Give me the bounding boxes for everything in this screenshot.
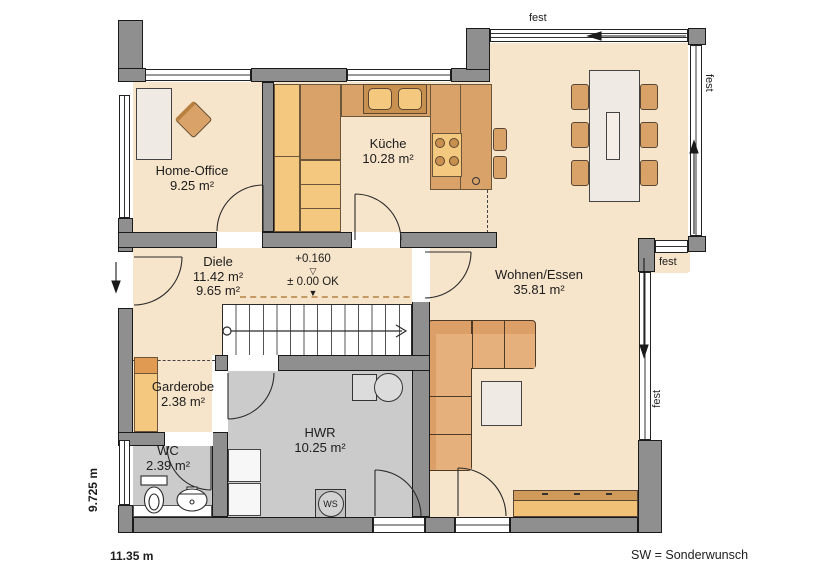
room-area: 2.39 m² bbox=[146, 459, 190, 474]
room-label-home-office: Home-Office 9.25 m² bbox=[156, 164, 229, 193]
cooktop-burner bbox=[435, 138, 445, 148]
wall-post-top-right bbox=[688, 28, 706, 45]
room-area: 9.25 m² bbox=[156, 179, 229, 194]
room-area: 10.25 m² bbox=[294, 441, 345, 456]
dryer bbox=[228, 483, 261, 516]
sofa-cushion-divider bbox=[424, 396, 471, 397]
living-door-opening bbox=[412, 248, 430, 302]
kitchen-shelf-line bbox=[301, 208, 340, 209]
water-softener: WS bbox=[315, 489, 346, 519]
kitchen-counter-left-bottom bbox=[300, 160, 341, 232]
room-label-kitchen: Küche 10.28 m² bbox=[362, 137, 413, 166]
table-centerpiece bbox=[606, 112, 620, 160]
room-label-utility: HWR 10.25 m² bbox=[294, 426, 345, 455]
dining-chair bbox=[571, 160, 589, 186]
living-terrace-door bbox=[455, 517, 510, 533]
sofa-seat-cushions bbox=[436, 334, 471, 470]
elevation-marks: +0.160 ▽ ± 0.00 OK ▼ bbox=[287, 253, 339, 298]
wall-post-step bbox=[638, 238, 655, 272]
dining-chair bbox=[640, 84, 658, 110]
floor-plan: WS bbox=[0, 0, 822, 570]
wall-hall-living bbox=[412, 300, 430, 517]
cooktop-burner bbox=[449, 138, 459, 148]
cloakroom-wardrobe-top bbox=[134, 357, 158, 374]
wall-bumpout-left bbox=[466, 28, 490, 70]
room-label-wc: WC 2.39 m² bbox=[146, 444, 190, 473]
wc-vanity bbox=[133, 505, 212, 517]
window-living-east bbox=[639, 272, 651, 440]
window-wc-west bbox=[119, 440, 130, 505]
bar-stool bbox=[493, 156, 507, 179]
wall-bottom-stub bbox=[425, 517, 455, 533]
boiler-tank bbox=[374, 373, 403, 402]
kitchen-cabinet-divider bbox=[275, 156, 299, 157]
room-area: 35.81 m² bbox=[495, 283, 583, 298]
room-name: WC bbox=[146, 444, 190, 459]
sideboard-top bbox=[513, 490, 638, 501]
wall-bottom-right bbox=[510, 517, 638, 533]
dining-chair bbox=[640, 122, 658, 148]
kitchen-tall-cabinet bbox=[274, 84, 300, 232]
window-dining-east bbox=[690, 45, 702, 236]
window-kitchen-north bbox=[347, 69, 451, 81]
room-label-living-dining: Wohnen/Essen 35.81 m² bbox=[495, 268, 583, 297]
dining-chair bbox=[640, 160, 658, 186]
kitchen-sink-basin bbox=[398, 88, 422, 110]
dining-chair bbox=[571, 84, 589, 110]
utility-door-opening bbox=[228, 355, 278, 371]
sideboard-handle bbox=[542, 493, 548, 495]
entrance-door-opening bbox=[118, 252, 133, 308]
kitchen-door-opening bbox=[352, 232, 400, 248]
room-name: HWR bbox=[294, 426, 345, 441]
staircase bbox=[222, 304, 412, 357]
wall-left-lower bbox=[118, 308, 133, 440]
wall-top-pier bbox=[251, 68, 347, 82]
wall-wc-utility bbox=[212, 432, 228, 517]
dining-chair bbox=[571, 122, 589, 148]
room-name: Wohnen/Essen bbox=[495, 268, 583, 283]
room-area: 11.42 m² bbox=[193, 270, 243, 285]
dimension-width: 11.35 m bbox=[110, 549, 153, 563]
kitchen-shelf-line bbox=[301, 184, 340, 185]
wall-office-kitchen bbox=[262, 82, 274, 232]
wall-stub-top-left bbox=[118, 20, 143, 69]
desk bbox=[136, 88, 172, 160]
kitchen-living-boundary-line bbox=[487, 190, 488, 233]
sideboard-handle bbox=[574, 493, 580, 495]
fixed-glazing-label-east-upper: fest bbox=[703, 74, 715, 92]
room-name: Home-Office bbox=[156, 164, 229, 179]
wall-bottom bbox=[133, 517, 373, 533]
legend-sonderwunsch: SW = Sonderwunsch bbox=[631, 548, 748, 562]
wall-top-corner bbox=[118, 68, 146, 82]
room-area: 2.38 m² bbox=[152, 395, 214, 410]
window-step bbox=[655, 240, 688, 253]
room-name: Diele bbox=[193, 255, 243, 270]
wall-kitchen-south-left bbox=[262, 232, 352, 248]
wall-kitchen-south-right bbox=[400, 232, 497, 248]
wall-top-pier bbox=[451, 68, 490, 82]
sideboard-handle bbox=[606, 493, 612, 495]
room-name: Küche bbox=[362, 137, 413, 152]
elevation-triangle-hollow: ▽ bbox=[287, 267, 339, 276]
window-dining-sliding bbox=[490, 29, 688, 42]
room-name: Garderobe bbox=[152, 380, 214, 395]
sofa-cushion-divider bbox=[504, 321, 505, 368]
elevation-upper: +0.160 bbox=[287, 253, 339, 267]
sofa-cushion-divider bbox=[472, 321, 473, 368]
washer bbox=[228, 449, 261, 482]
fixed-glazing-label-east-lower: fest bbox=[651, 390, 663, 408]
room-label-cloakroom: Garderobe 2.38 m² bbox=[152, 380, 214, 409]
utility-terrace-door bbox=[373, 517, 425, 533]
wall-right-lower bbox=[638, 440, 662, 533]
water-softener-label: WS bbox=[318, 491, 344, 517]
room-area: 10.28 m² bbox=[362, 152, 413, 167]
wall-office-south bbox=[118, 232, 217, 248]
coffee-table bbox=[481, 381, 522, 426]
window-office-north bbox=[145, 69, 251, 81]
wall-utility-north-left bbox=[215, 355, 228, 371]
sofa-cushion-divider bbox=[424, 434, 471, 435]
wall-bottom-left-corner bbox=[118, 505, 133, 533]
cooktop-burner bbox=[449, 156, 459, 166]
wall-post-right-mid bbox=[688, 236, 706, 252]
elevation-triangle-filled: ▼ bbox=[287, 289, 339, 298]
dimension-height: 9.725 m bbox=[86, 468, 100, 512]
elevation-main: ± 0.00 OK bbox=[287, 276, 339, 290]
wall-utility-north-right bbox=[278, 355, 430, 371]
kitchen-counter-left-top bbox=[300, 84, 341, 160]
fixed-glazing-label-north: fest bbox=[529, 12, 547, 24]
kitchen-sink-basin bbox=[368, 88, 392, 110]
room-area-alt: 9.65 m² bbox=[193, 284, 243, 299]
cooktop-burner bbox=[435, 156, 445, 166]
room-label-hallway: Diele 11.42 m² 9.65 m² bbox=[193, 255, 243, 299]
counter-sink-drain bbox=[472, 177, 480, 185]
window-office-west bbox=[119, 95, 130, 218]
bar-stool bbox=[493, 128, 507, 151]
fixed-glazing-label-step: fest bbox=[659, 256, 677, 268]
office-door-opening bbox=[217, 232, 262, 248]
